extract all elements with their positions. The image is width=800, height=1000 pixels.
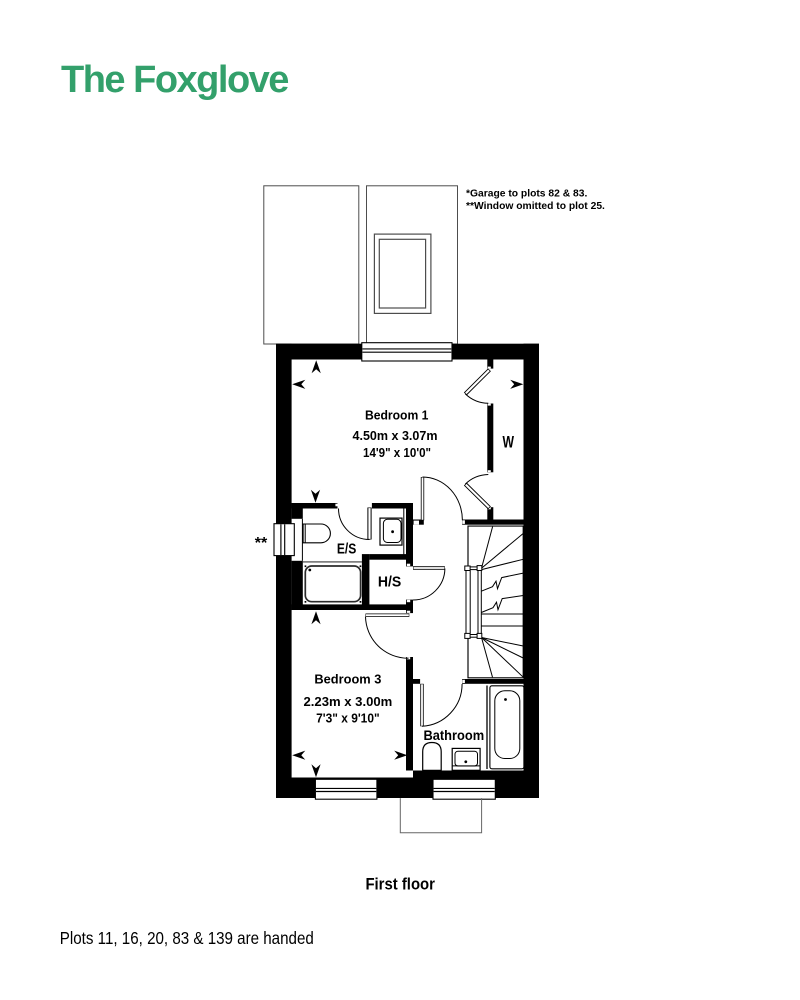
svg-text:The Foxglove: The Foxglove (61, 59, 288, 101)
svg-text:W: W (502, 434, 514, 452)
svg-text:14'9" x 10'0": 14'9" x 10'0" (363, 445, 431, 460)
svg-text:First floor: First floor (365, 874, 435, 893)
svg-text:Bedroom 1: Bedroom 1 (365, 408, 429, 423)
svg-text:*Garage to plots 82 & 83.: *Garage to plots 82 & 83. (466, 189, 587, 200)
svg-text:7'3" x 9'10": 7'3" x 9'10" (316, 710, 380, 725)
svg-text:Bedroom 3: Bedroom 3 (314, 671, 381, 686)
svg-text:E/S: E/S (337, 542, 357, 558)
svg-text:Bathroom: Bathroom (423, 728, 484, 743)
svg-text:Plots 11, 16, 20, 83 & 139 are: Plots 11, 16, 20, 83 & 139 are handed (60, 928, 314, 948)
svg-text:4.50m x 3.07m: 4.50m x 3.07m (353, 428, 438, 443)
svg-text:**: ** (255, 535, 268, 552)
svg-text:**Window omitted to plot 25.: **Window omitted to plot 25. (466, 201, 605, 212)
svg-text:H/S: H/S (378, 575, 402, 591)
svg-text:2.23m x 3.00m: 2.23m x 3.00m (304, 694, 393, 709)
